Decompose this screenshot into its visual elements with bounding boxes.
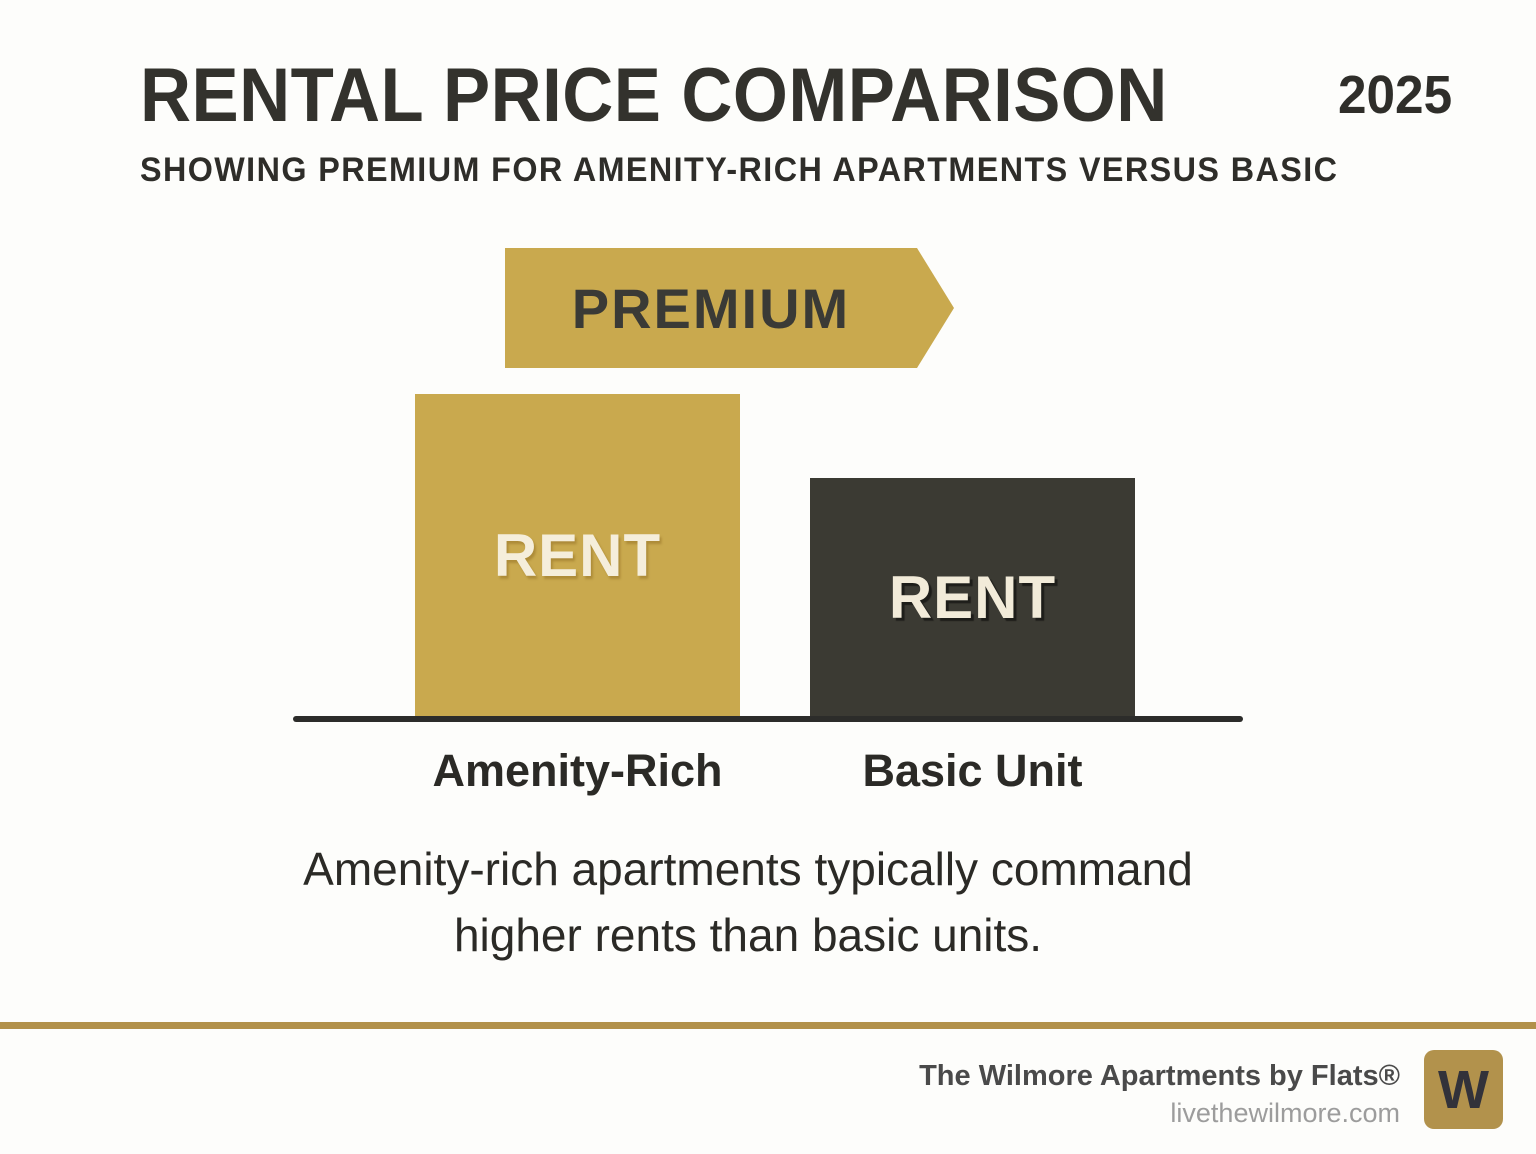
infographic-canvas: RENTAL PRICE COMPARISON 2025 SHOWING PRE… — [0, 0, 1536, 1154]
footer-text-block: The Wilmore Apartments by Flats® livethe… — [919, 1058, 1400, 1130]
chart-baseline — [293, 716, 1243, 722]
bar-amenity-rich: RENT — [415, 394, 740, 717]
footer-website-url: livethewilmore.com — [919, 1096, 1400, 1130]
premium-arrow-label: PREMIUM — [572, 276, 850, 341]
category-label-amenity-rich: Amenity-Rich — [415, 744, 740, 798]
premium-arrow: PREMIUM — [505, 248, 954, 368]
footer-gold-divider — [0, 1022, 1536, 1029]
caption-line-1: Amenity-rich apartments typically comman… — [0, 836, 1496, 902]
bar-amenity-rich-label: RENT — [494, 521, 661, 590]
wilmore-logo-letter: W — [1438, 1063, 1489, 1117]
wilmore-logo-icon: W — [1424, 1050, 1503, 1129]
category-label-basic-unit: Basic Unit — [810, 744, 1135, 798]
page-subtitle: SHOWING PREMIUM FOR AMENITY-RICH APARTME… — [140, 151, 1338, 189]
bar-basic-unit-label: RENT — [889, 563, 1056, 632]
footer-brand-name: The Wilmore Apartments by Flats® — [919, 1058, 1400, 1094]
chart-caption: Amenity-rich apartments typically comman… — [0, 836, 1496, 968]
year-label: 2025 — [1338, 68, 1452, 122]
page-title: RENTAL PRICE COMPARISON — [140, 58, 1168, 134]
bar-basic-unit: RENT — [810, 478, 1135, 717]
caption-line-2: higher rents than basic units. — [0, 902, 1496, 968]
footer: The Wilmore Apartments by Flats® livethe… — [919, 1050, 1503, 1130]
